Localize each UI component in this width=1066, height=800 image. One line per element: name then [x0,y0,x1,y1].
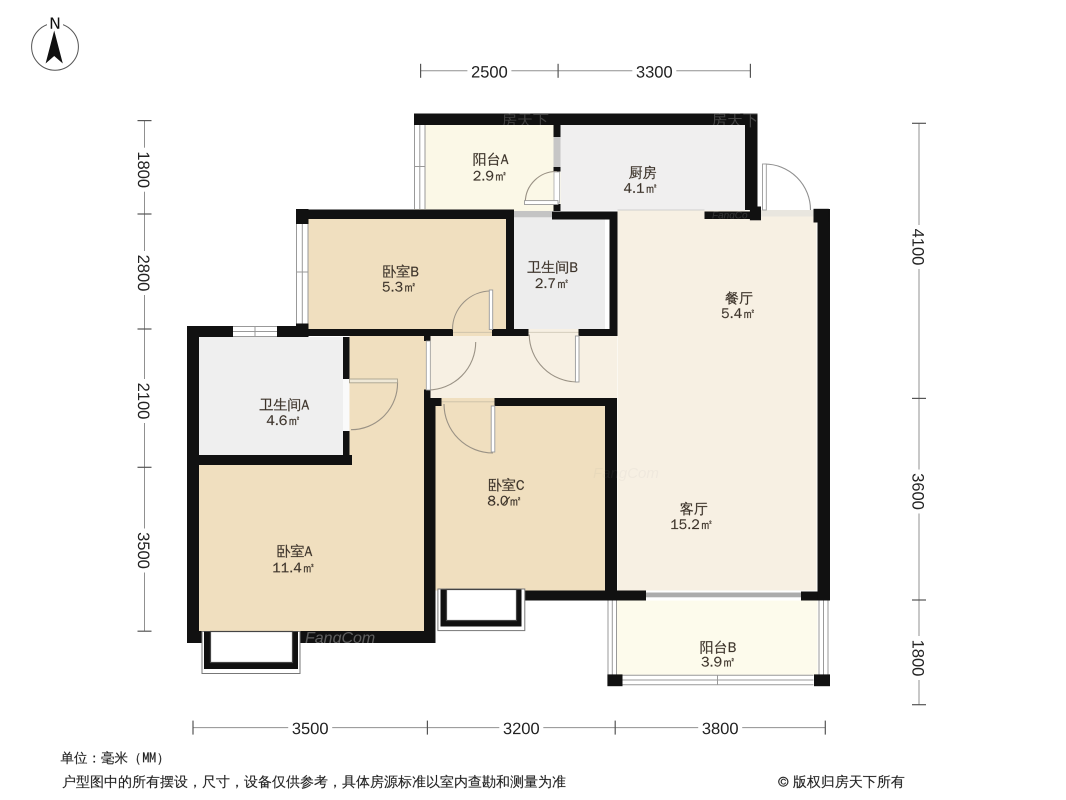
svg-text:FangCo: FangCo [712,211,748,222]
svg-text:FangCom: FangCom [593,465,659,482]
svg-text:FangCom: FangCom [305,630,375,647]
